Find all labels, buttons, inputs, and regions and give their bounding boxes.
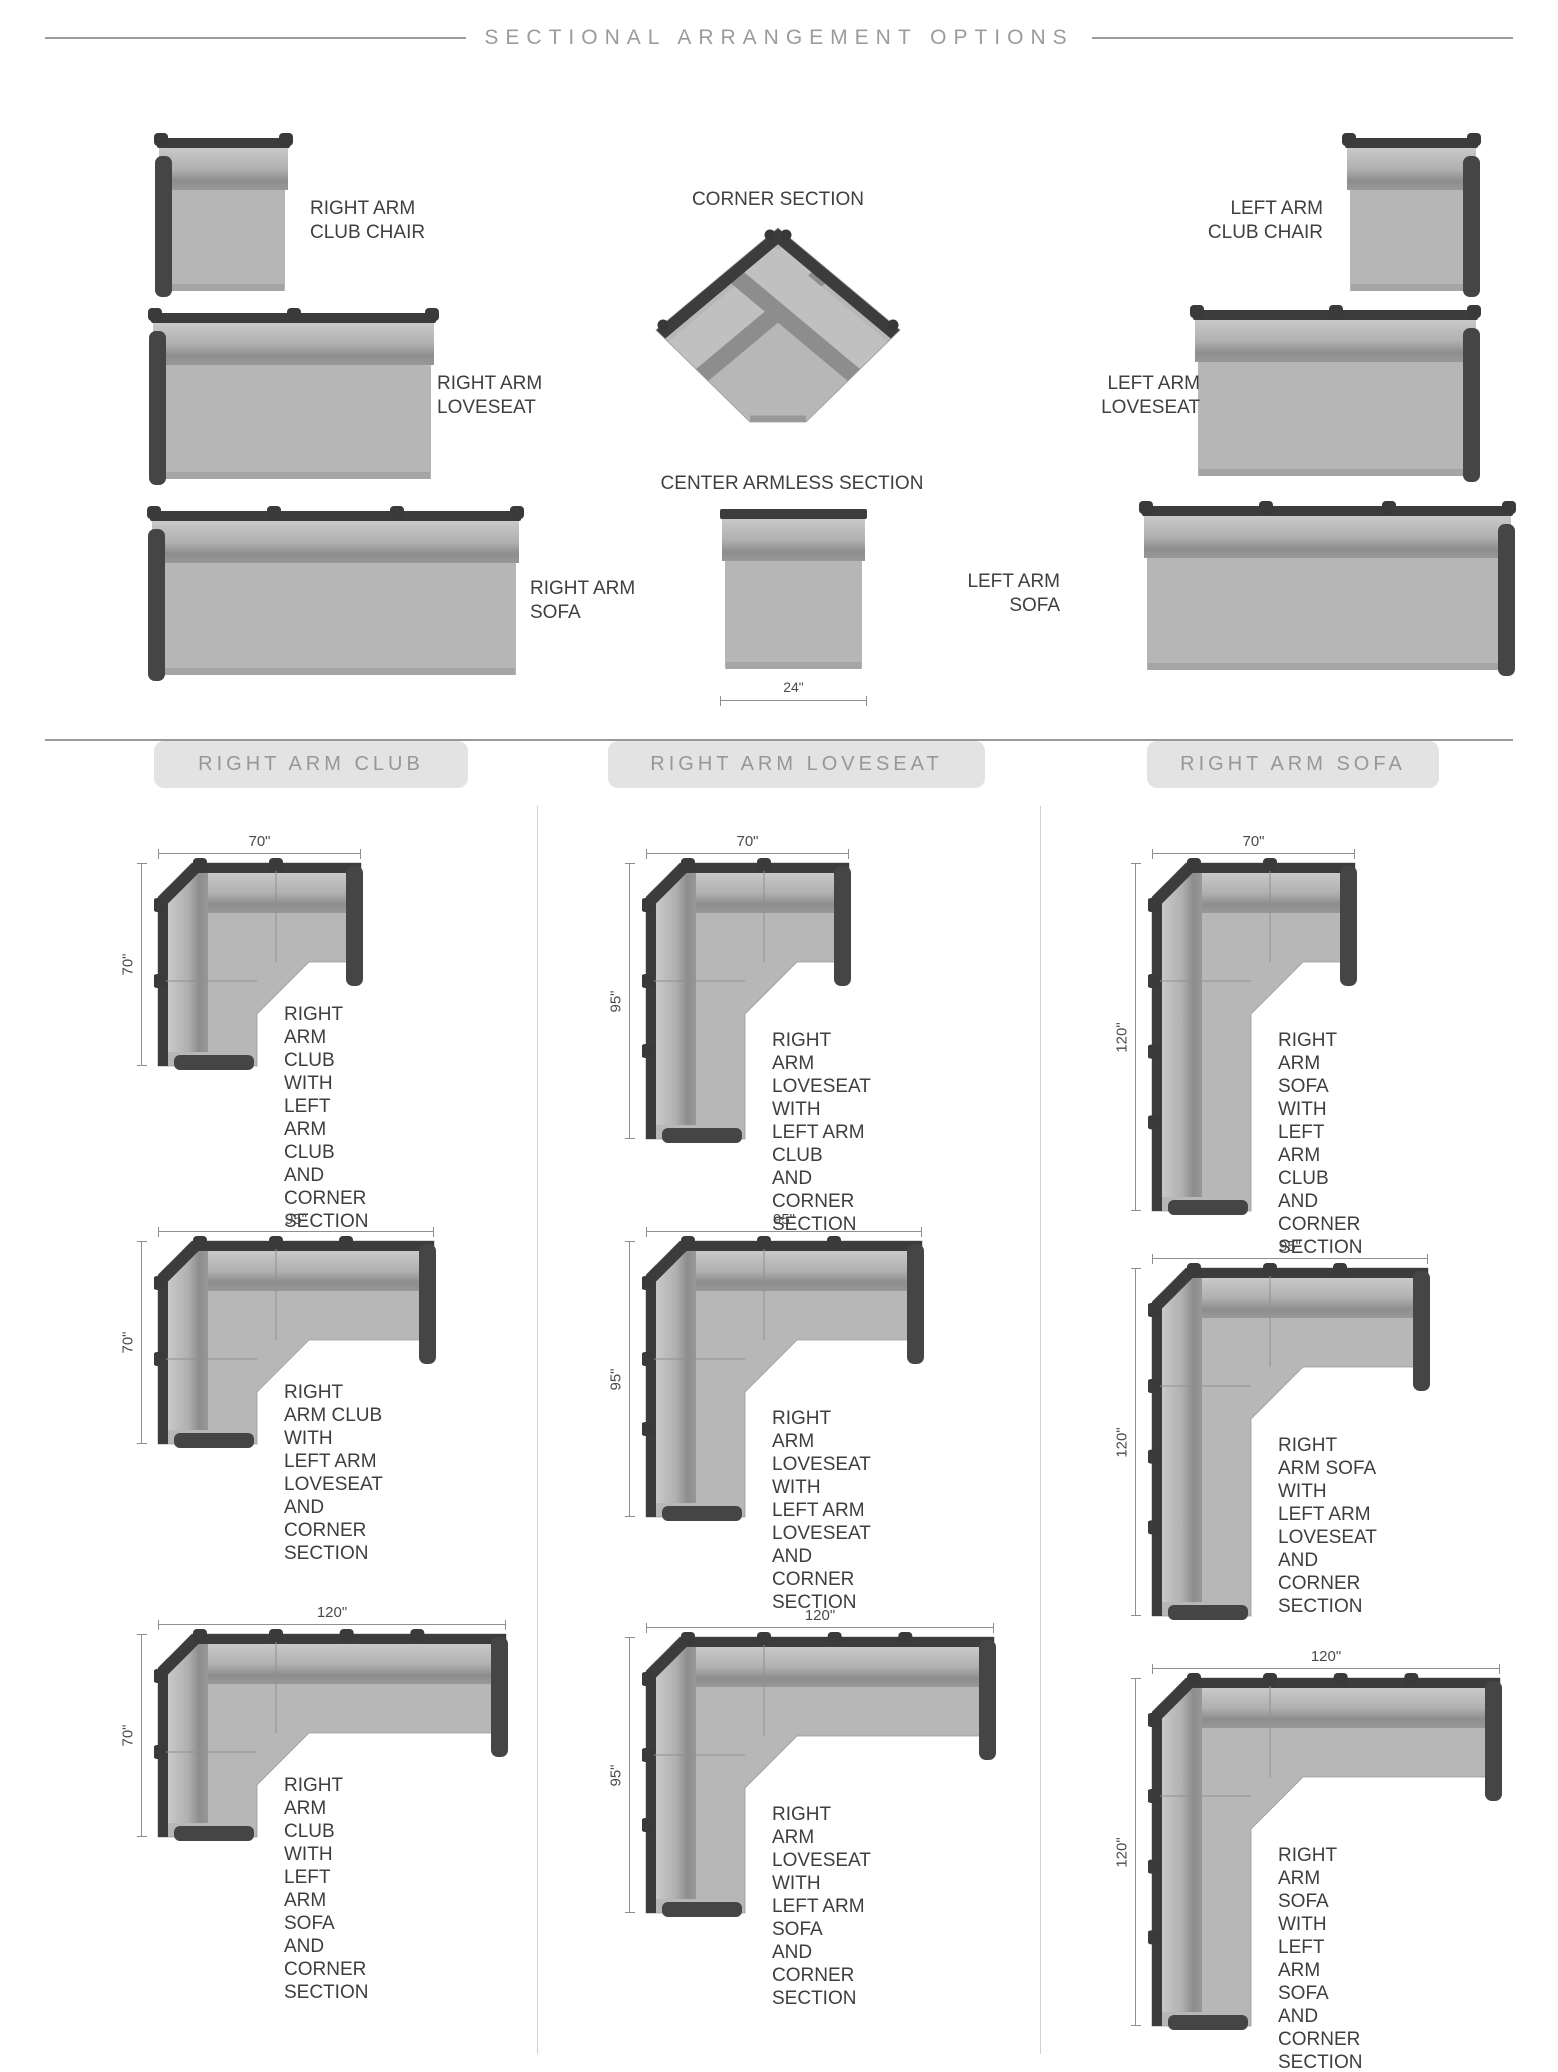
height-dimension-line bbox=[629, 863, 630, 1139]
left-arm-club-chair-top-view bbox=[1341, 132, 1482, 299]
height-dimension: 95" bbox=[605, 1637, 627, 1913]
width-dimension: 70" bbox=[1152, 833, 1355, 850]
width-dimension: 70" bbox=[158, 833, 361, 850]
width-dimension: 70" bbox=[646, 833, 849, 850]
arrangement-caption: RIGHT ARM CLUB WITH LEFT ARM CLUB AND CO… bbox=[284, 1003, 368, 1233]
height-dimension-line bbox=[141, 1241, 142, 1444]
left-arm-sofa-top-view bbox=[1138, 500, 1517, 678]
height-dimension: 70" bbox=[117, 1241, 139, 1444]
right-arm-club-chair-label: RIGHT ARM CLUB CHAIR bbox=[310, 197, 425, 245]
corner-section-top-view bbox=[653, 225, 903, 429]
width-dimension-line bbox=[158, 1231, 434, 1232]
left-arm-loveseat-top-view bbox=[1189, 304, 1482, 484]
left-arm-club-chair-label: LEFT ARM CLUB CHAIR bbox=[1208, 197, 1323, 245]
width-dimension-line bbox=[646, 853, 849, 854]
height-dimension-line bbox=[141, 863, 142, 1066]
column-separator-2 bbox=[1040, 806, 1041, 2054]
height-dimension-line bbox=[1135, 863, 1136, 1211]
title-rule-right bbox=[1092, 37, 1513, 39]
left-arm-loveseat-label: LEFT ARM LOVESEAT bbox=[1101, 372, 1200, 420]
arrangement-caption: RIGHT ARM LOVESEAT WITH LEFT ARM SOFA AN… bbox=[772, 1803, 871, 2010]
height-dimension: 120" bbox=[1111, 1678, 1133, 2026]
center-armless-section-top-view bbox=[716, 503, 871, 677]
height-dimension: 120" bbox=[1111, 1268, 1133, 1616]
arrangement-caption: RIGHT ARM CLUB WITH LEFT ARM LOVESEAT AN… bbox=[284, 1381, 383, 1565]
arrangement-caption: RIGHT ARM CLUB WITH LEFT ARM SOFA AND CO… bbox=[284, 1774, 368, 2004]
right-arm-sofa-top-view bbox=[146, 505, 525, 683]
width-dimension-line bbox=[1152, 1668, 1500, 1669]
header-right-arm-loveseat: RIGHT ARM LOVESEAT bbox=[608, 741, 985, 788]
width-dimension: 120" bbox=[646, 1607, 994, 1624]
height-dimension-line bbox=[1135, 1678, 1136, 2026]
right-arm-sofa-label: RIGHT ARM SOFA bbox=[530, 577, 635, 625]
height-dimension: 120" bbox=[1111, 863, 1133, 1211]
right-arm-loveseat-top-view bbox=[147, 307, 440, 487]
catalog-page: SECTIONAL ARRANGEMENT OPTIONS RIGHT ARM … bbox=[0, 0, 1558, 2072]
height-dimension: 95" bbox=[605, 863, 627, 1139]
width-dimension: 95" bbox=[646, 1211, 922, 1228]
corner-section-label: CORNER SECTION bbox=[628, 188, 928, 212]
width-dimension-line bbox=[158, 1624, 506, 1625]
height-dimension-line bbox=[629, 1637, 630, 1913]
arrangement-caption: RIGHT ARM SOFA WITH LEFT ARM CLUB AND CO… bbox=[1278, 1029, 1362, 1259]
height-dimension-line bbox=[141, 1634, 142, 1837]
width-dimension-line bbox=[646, 1627, 994, 1628]
height-dimension-line bbox=[629, 1241, 630, 1517]
right-arm-club-chair-top-view bbox=[153, 132, 294, 299]
armless-width-dimension: 24" bbox=[720, 679, 867, 695]
title-rule-left bbox=[45, 37, 466, 39]
header-right-arm-sofa: RIGHT ARM SOFA bbox=[1147, 741, 1439, 788]
right-arm-loveseat-label: RIGHT ARM LOVESEAT bbox=[437, 372, 542, 420]
page-header: SECTIONAL ARRANGEMENT OPTIONS bbox=[45, 26, 1513, 50]
width-dimension: 120" bbox=[158, 1604, 506, 1621]
width-dimension: 95" bbox=[158, 1211, 434, 1228]
width-dimension-line bbox=[1152, 853, 1355, 854]
center-armless-section-label: CENTER ARMLESS SECTION bbox=[642, 472, 942, 496]
height-dimension: 95" bbox=[605, 1241, 627, 1517]
height-dimension: 70" bbox=[117, 863, 139, 1066]
arrangement-caption: RIGHT ARM LOVESEAT WITH LEFT ARM LOVESEA… bbox=[772, 1407, 871, 1614]
arrangement-caption: RIGHT ARM SOFA WITH LEFT ARM SOFA AND CO… bbox=[1278, 1844, 1362, 2072]
width-dimension-line bbox=[158, 853, 361, 854]
arrangement-caption: RIGHT ARM SOFA WITH LEFT ARM LOVESEAT AN… bbox=[1278, 1434, 1377, 1618]
page-title: SECTIONAL ARRANGEMENT OPTIONS bbox=[484, 26, 1073, 50]
width-dimension-line bbox=[646, 1231, 922, 1232]
height-dimension: 70" bbox=[117, 1634, 139, 1837]
header-right-arm-club: RIGHT ARM CLUB bbox=[154, 741, 468, 788]
left-arm-sofa-label: LEFT ARM SOFA bbox=[967, 570, 1060, 618]
width-dimension-line bbox=[1152, 1258, 1428, 1259]
arrangement-caption: RIGHT ARM LOVESEAT WITH LEFT ARM CLUB AN… bbox=[772, 1029, 871, 1236]
width-dimension: 95" bbox=[1152, 1238, 1428, 1255]
armless-width-dimension-line bbox=[720, 700, 867, 701]
width-dimension: 120" bbox=[1152, 1648, 1500, 1665]
column-separator-1 bbox=[537, 806, 538, 2054]
height-dimension-line bbox=[1135, 1268, 1136, 1616]
